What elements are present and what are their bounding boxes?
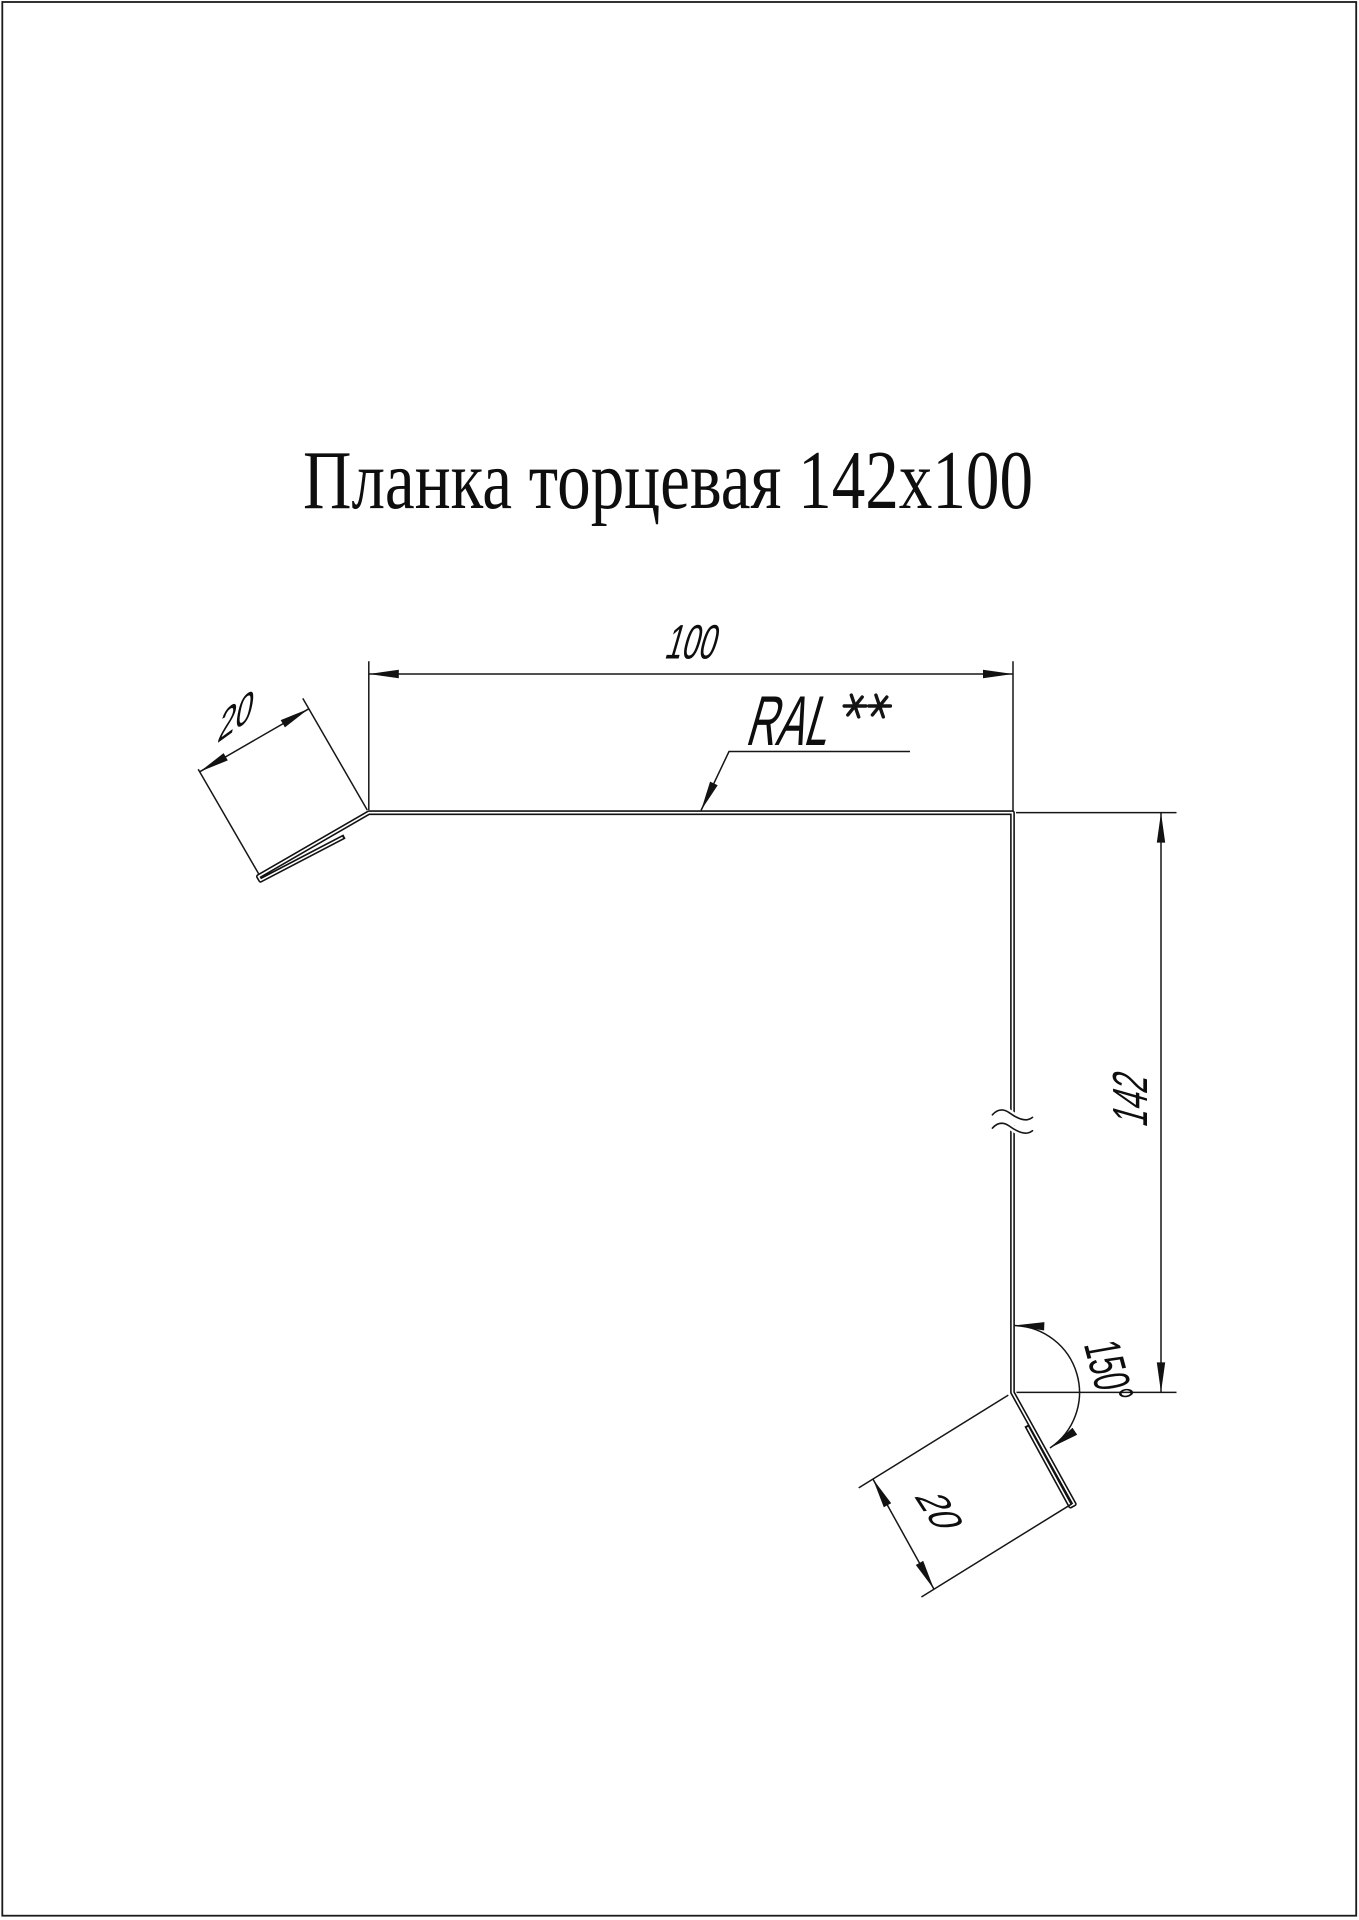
svg-text:150°: 150° xyxy=(1073,1336,1145,1405)
svg-text:Планка торцевая 142x100: Планка торцевая 142x100 xyxy=(303,434,1033,527)
svg-text:20: 20 xyxy=(214,678,258,755)
svg-text:RAL: RAL xyxy=(740,681,844,760)
svg-text:142: 142 xyxy=(1103,1065,1158,1131)
svg-text:20: 20 xyxy=(904,1492,976,1531)
svg-text:100: 100 xyxy=(660,614,726,669)
